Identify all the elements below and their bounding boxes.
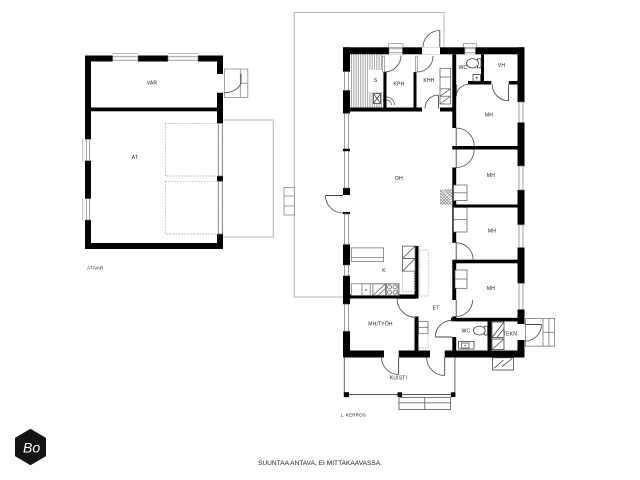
- svg-text:KHH: KHH: [423, 78, 434, 84]
- svg-text:VH: VH: [498, 63, 506, 69]
- svg-text:MH: MH: [488, 229, 496, 235]
- svg-text:AT/VAR: AT/VAR: [87, 266, 104, 271]
- svg-text:Bo: Bo: [23, 440, 40, 456]
- svg-text:WC: WC: [459, 65, 468, 71]
- svg-text:AT: AT: [132, 155, 138, 161]
- svg-text:MH: MH: [485, 113, 493, 119]
- svg-text:K: K: [382, 268, 386, 274]
- svg-text:OH: OH: [395, 176, 403, 182]
- svg-text:KUISTI: KUISTI: [390, 376, 407, 382]
- svg-text:TEKN: TEKN: [503, 332, 517, 338]
- svg-text:KPH: KPH: [394, 82, 405, 88]
- svg-text:MH: MH: [487, 286, 495, 292]
- svg-text:SUUNTAA ANTAVA, EI MITTAKAAVAS: SUUNTAA ANTAVA, EI MITTAKAAVASSA.: [258, 460, 382, 467]
- svg-text:S: S: [374, 78, 378, 84]
- svg-text:1. KERROS: 1. KERROS: [341, 413, 366, 418]
- svg-text:VAR: VAR: [147, 81, 158, 87]
- svg-text:WC: WC: [462, 329, 471, 335]
- svg-text:MH: MH: [487, 173, 495, 179]
- svg-text:MH/TYÖH: MH/TYÖH: [368, 321, 393, 328]
- svg-text:ET: ET: [433, 306, 440, 312]
